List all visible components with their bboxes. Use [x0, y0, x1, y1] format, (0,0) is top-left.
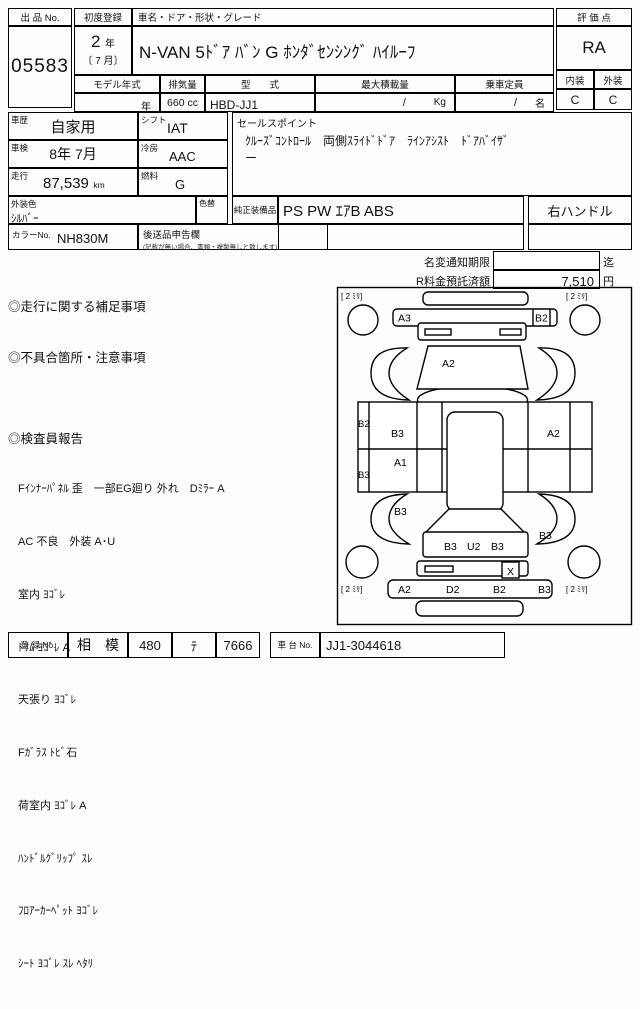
front-right-fender-arch [537, 348, 575, 400]
damage-code-left-sill-front: B2 [358, 419, 370, 430]
wheel-rear-right [568, 546, 600, 578]
displacement-label: 排気量 [168, 77, 197, 91]
tail-light-left [425, 566, 453, 572]
capacity-unit: 名 [535, 95, 545, 110]
wheel-rear-left [346, 546, 378, 578]
wheel-front-left [348, 305, 378, 335]
registration-area: 相 模 [77, 635, 119, 655]
mileage-unit: km [93, 180, 104, 190]
mileage-label: 走行 [11, 170, 28, 182]
car-name-value: N-VAN 5ﾄﾞｱ ﾊﾞﾝ G ﾎﾝﾀﾞｾﾝｼﾝｸﾞ ﾊｲﾙｰﾌ [139, 38, 415, 63]
capacity-value: / [514, 97, 517, 109]
shift-label: シフト [141, 114, 167, 126]
registration-number: 7666 [224, 638, 253, 653]
rear-window [424, 509, 526, 534]
first-reg-month: 〔 7 月〕 [75, 52, 131, 67]
capacity-label: 乗車定員 [485, 77, 523, 91]
color-no-box: カラーNo. NH830M [8, 224, 138, 250]
tire-mark-bottom-right: [ 2 ﾐﾘ] [566, 585, 587, 594]
exterior-grade: C [609, 93, 618, 107]
interior-label: 内装 [565, 73, 584, 87]
sales-point-line1: ｸﾙｰｽﾞｺﾝﾄﾛｰﾙ 両側ｽﾗｲﾄﾞﾄﾞｱ ﾗｲﾝｱｼｽﾄ ﾄﾞｱﾊﾞｲｻﾞ [237, 132, 631, 149]
handle-box: 右ハンドル [528, 196, 632, 224]
sales-point-line2: ー [237, 149, 631, 166]
damage-code-front-bumper-right: B2 [535, 313, 548, 325]
damage-code-rear-bumper-1: A2 [398, 584, 411, 596]
equipment-value: PS PW ｴｱB ABS [283, 200, 394, 221]
front-roof-edge [423, 292, 528, 305]
model-code-value: HBD-JJ1 [210, 98, 258, 112]
displacement-header: 排気量 [160, 75, 205, 93]
equipment-extra-box [278, 224, 524, 250]
registration-kana: ﾃ [191, 636, 198, 655]
capacity-box: / 名 [455, 93, 554, 112]
model-code-header: 型 式 [205, 75, 315, 93]
equipment-header: 純正装備品 [232, 196, 278, 224]
damage-code-rear-bumper-2: D2 [446, 584, 460, 596]
inspection-label: 車検 [11, 142, 28, 154]
chassis-no-label: 車 台 No. [278, 639, 313, 651]
max-load-box: / Kg [315, 93, 455, 112]
fuel-box: 燃料 G [138, 168, 228, 196]
exterior-color-label: 外装色 [11, 198, 37, 210]
interior-grade: C [571, 93, 580, 107]
color-change-box: 色替 [196, 196, 228, 224]
history-box: 車歴 自家用 [8, 112, 138, 140]
equipment-label: 純正装備品 [234, 204, 277, 216]
interior-header: 内装 [556, 70, 594, 89]
color-change-label: 色替 [199, 198, 215, 209]
car-name-label: 車名・ドア・形状・グレード [138, 13, 262, 24]
sales-point-box: セールスポイント ｸﾙｰｽﾞｺﾝﾄﾛｰﾙ 両側ｽﾗｲﾄﾞﾄﾞｱ ﾗｲﾝｱｼｽﾄ … [232, 112, 632, 196]
model-year-box: 年 [74, 93, 160, 112]
sales-point-label: セールスポイント [237, 115, 631, 130]
capacity-header: 乗車定員 [455, 75, 554, 93]
history-label: 車歴 [11, 114, 28, 126]
inspection-value: 8年 7月 [49, 144, 96, 164]
registration-class: 480 [139, 638, 161, 653]
damage-code-right-rear-quarter: B3 [539, 530, 552, 542]
registration-kana-box: ﾃ [172, 632, 216, 658]
car-name-header: 車名・ドア・形状・グレード [132, 8, 554, 26]
exterior-header: 外装 [594, 70, 632, 89]
first-reg-year: 2 [91, 32, 100, 51]
name-change-field [493, 251, 600, 270]
chassis-no-header: 車 台 No. [270, 632, 320, 658]
first-registration-label: 初度登録 [84, 10, 122, 24]
chassis-no-box: JJ1-3044618 [320, 632, 505, 658]
max-load-unit: Kg [434, 97, 446, 108]
lot-no-value: 05583 [11, 56, 69, 78]
inspector-title: ◎検査員報告 [8, 428, 83, 447]
auction-sheet: 出 品 No. 05583 初度登録 2 年 〔 7 月〕 車名・ドア・形状・グ… [0, 0, 640, 680]
lot-no-label: 出 品 No. [20, 10, 59, 24]
inspector-line: ｼｰﾄ ﾖｺﾞﾚ ｽﾚ ﾍﾀﾘ [18, 956, 330, 974]
windshield [417, 346, 528, 389]
car-name-box: N-VAN 5ﾄﾞｱ ﾊﾞﾝ G ﾎﾝﾀﾞｾﾝｼﾝｸﾞ ﾊｲﾙｰﾌ [132, 26, 554, 75]
damage-code-rear-bumper-3: B2 [493, 584, 506, 596]
registration-class-box: 480 [128, 632, 172, 658]
score-header: 評 価 点 [556, 8, 632, 26]
mileage-value: 87,539 [43, 175, 89, 192]
damage-code-left-sill-rear: B3 [358, 470, 370, 481]
headlight-left [425, 329, 451, 335]
rear-bumper [388, 580, 552, 598]
registration-number-box: 7666 [216, 632, 260, 658]
lot-no-header: 出 品 No. [8, 8, 72, 26]
exterior-label: 外装 [603, 73, 622, 87]
name-change-label: 名変通知期限 [370, 254, 490, 270]
history-value: 自家用 [50, 116, 95, 137]
damage-code-rear-panel-center: U2 [467, 541, 481, 553]
inspector-line: AC 不良 外装 A･U [18, 534, 330, 552]
model-year-label: モデル年式 [93, 77, 141, 91]
damage-code-rear-bumper-4: B3 [538, 584, 551, 596]
score-box: RA [556, 26, 632, 70]
damage-code-windshield: A2 [442, 358, 455, 370]
wheel-front-right [570, 305, 600, 335]
inspector-report-list: Fｲﾝﾅｰﾊﾟﾈﾙ 歪 一部EG廻り 外れ Dﾐﾗｰ A AC 不良 外装 A･… [18, 446, 330, 1009]
first-reg-year-unit: 年 [105, 39, 115, 50]
first-registration-box: 2 年 〔 7 月〕 [74, 26, 132, 75]
lot-no-box: 05583 [8, 26, 72, 108]
displacement-value: 660 cc [167, 97, 198, 109]
damage-code-right-side: A2 [547, 428, 560, 440]
model-code-label: 型 式 [241, 77, 279, 91]
inspector-line: Fｲﾝﾅｰﾊﾟﾈﾙ 歪 一部EG廻り 外れ Dﾐﾗｰ A [18, 481, 330, 499]
max-load-value: / [403, 97, 406, 109]
inspection-box: 車検 8年 7月 [8, 140, 138, 168]
fuel-label: 燃料 [141, 170, 158, 182]
tire-mark-bottom-left: [ 2 ﾐﾘ] [341, 585, 362, 594]
inspector-line: ﾌﾛｱｰｶｰﾍﾟｯﾄ ﾖｺﾞﾚ [18, 903, 330, 921]
ac-box: 冷房 AAC [138, 140, 228, 168]
displacement-box: 660 cc [160, 93, 205, 112]
inspector-line: 天張り ﾖｺﾞﾚ [18, 692, 330, 710]
equipment-box: PS PW ｴｱB ABS [278, 196, 524, 224]
damage-code-rear-panel-left: B3 [444, 541, 457, 553]
exterior-color-box: 外装色 ｼﾙﾊﾞｰ [8, 196, 196, 224]
tire-mark-top-right: [ 2 ﾐﾘ] [566, 292, 587, 301]
inspector-line: 室内 ﾖｺﾞﾚ [18, 587, 330, 605]
tire-mark-top-left: [ 2 ﾐﾘ] [341, 292, 362, 301]
ac-label: 冷房 [141, 142, 158, 154]
damage-code-rear-panel-right: B3 [491, 541, 504, 553]
interior-grade-box: C [556, 89, 594, 110]
inspector-line: Fｶﾞﾗｽ ﾄﾋﾞ石 [18, 745, 330, 763]
first-registration-header: 初度登録 [74, 8, 132, 26]
handle-value: 右ハンドル [547, 201, 612, 220]
rear-lower-edge [416, 601, 523, 616]
registration-area-box: 相 模 [68, 632, 128, 658]
damage-code-left-door-lower: A1 [394, 457, 407, 469]
registration-no-label: 登 録 No. [21, 639, 56, 651]
registration-no-header: 登 録 No. [8, 632, 68, 658]
handle-extra-box [528, 224, 632, 250]
damage-diagram: [ 2 ﾐﾘ] [ 2 ﾐﾘ] [ 2 ﾐﾘ] [ 2 ﾐﾘ] [336, 286, 633, 627]
name-change-unit: 迄 [603, 254, 614, 270]
shift-box: シフト IAT [138, 112, 228, 140]
max-load-header: 最大積載量 [315, 75, 455, 93]
damage-diagram-svg: [ 2 ﾐﾘ] [ 2 ﾐﾘ] [ 2 ﾐﾘ] [ 2 ﾐﾘ] [336, 286, 633, 626]
front-left-fender-arch [371, 348, 409, 400]
inspector-line: 荷室内 ﾖｺﾞﾚ A [18, 798, 330, 816]
roof [447, 412, 503, 511]
model-code-box: HBD-JJ1 [205, 93, 315, 112]
score-label: 評 価 点 [577, 10, 611, 24]
damage-code-left-door: B3 [391, 428, 404, 440]
rear-left-fender-arch [371, 494, 409, 544]
max-load-label: 最大積載量 [361, 77, 409, 91]
headlight-right [500, 329, 521, 335]
color-no-label: カラーNo. [12, 229, 51, 241]
damage-code-front-bumper-left: A3 [398, 313, 411, 325]
inspector-line: ﾊﾝﾄﾞﾙｸﾞﾘｯﾌﾟ ｽﾚ [18, 851, 330, 869]
damage-code-left-rear-quarter: B3 [394, 506, 407, 518]
mileage-notes-title: ◎走行に関する補足事項 [8, 296, 146, 315]
model-year-header: モデル年式 [74, 75, 160, 93]
defects-title: ◎不具合箇所・注意事項 [8, 347, 146, 366]
mileage-box: 走行 87,539 km [8, 168, 138, 196]
damage-code-tail-x: X [507, 566, 514, 578]
chassis-no: JJ1-3044618 [326, 638, 401, 653]
exterior-grade-box: C [594, 89, 632, 110]
score-value: RA [582, 38, 606, 58]
